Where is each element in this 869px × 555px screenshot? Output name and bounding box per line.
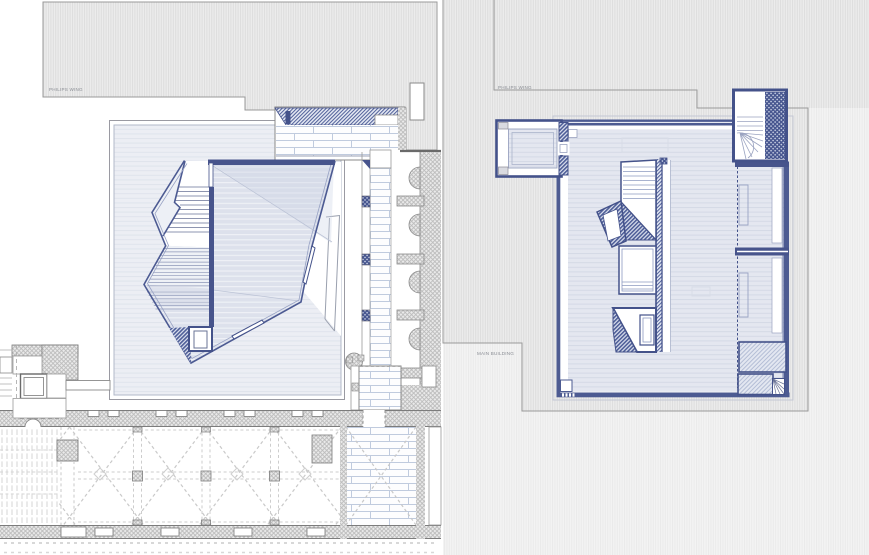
svg-text:PHILIPS WING: PHILIPS WING — [49, 87, 83, 92]
svg-text:PHILIPS WING: PHILIPS WING — [498, 85, 532, 90]
svg-text:MAIN BUILDING: MAIN BUILDING — [477, 351, 514, 356]
